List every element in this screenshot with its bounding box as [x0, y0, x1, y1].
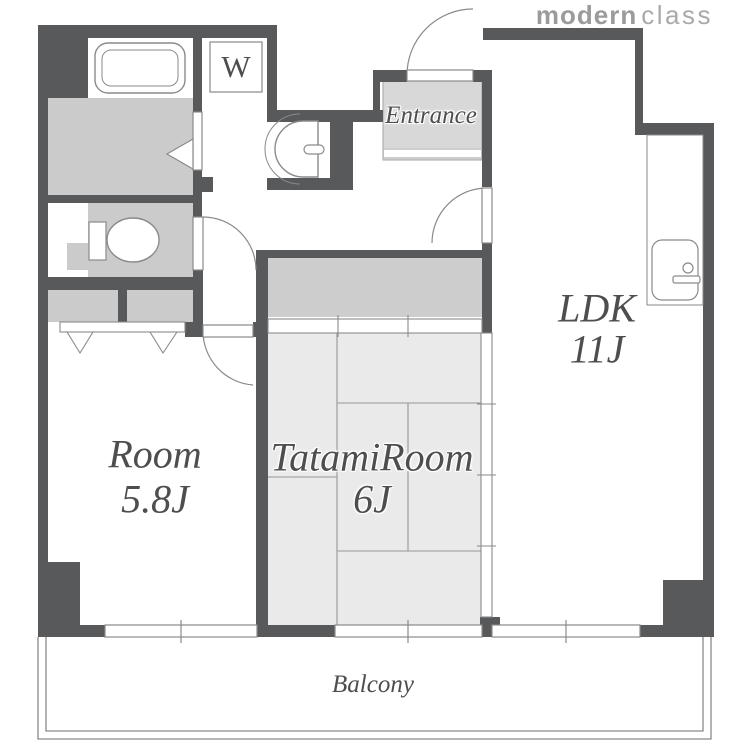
toilet-door [193, 217, 256, 270]
entrance-label: Entrance [385, 102, 477, 130]
wall-right [703, 123, 714, 637]
tatami-size: 6J [353, 476, 391, 523]
washbasin-icon [265, 114, 324, 184]
floor-plan-drawing [0, 0, 750, 750]
wall-left [38, 25, 48, 637]
ldk-size: 11J [570, 326, 625, 373]
ldk-door [432, 188, 492, 243]
room-label: Room [108, 431, 201, 478]
bathroom-floor [48, 98, 193, 195]
tatami-label: TatamiRoom [270, 434, 473, 481]
wall-room-tatami [256, 250, 268, 637]
entrance-step [384, 148, 481, 159]
closet-track [60, 322, 185, 353]
folding-door-mark [150, 332, 177, 353]
wall-top-right [483, 28, 643, 40]
balcony-label: Balcony [332, 671, 414, 699]
pillar-bottom-right [663, 580, 713, 637]
room-door [203, 325, 253, 385]
bathtub-icon [95, 43, 185, 93]
ldk-label: LDK [558, 285, 636, 332]
toilet-icon [89, 218, 159, 262]
washer-label: W [221, 49, 250, 85]
tatami-closet [268, 258, 482, 317]
floor-plan: modernclass [0, 0, 750, 750]
kitchen-sink-icon [647, 135, 703, 305]
closet-right [127, 290, 193, 322]
folding-door-mark [67, 332, 93, 353]
toilet-side-counter [67, 243, 88, 270]
room-size: 5.8J [121, 476, 189, 523]
closet-left [48, 290, 118, 322]
entrance-door [407, 9, 473, 81]
